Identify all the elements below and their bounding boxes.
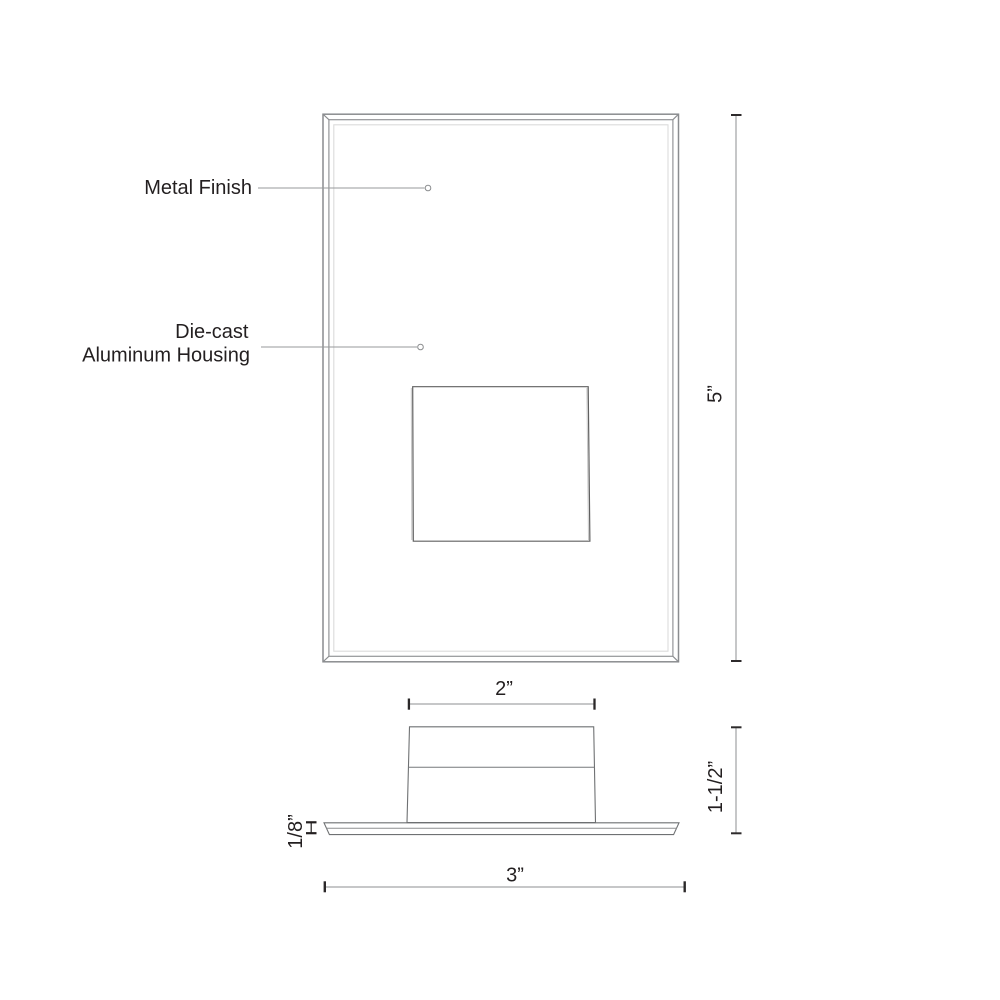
svg-text:2”: 2” <box>495 678 513 700</box>
svg-text:3”: 3” <box>506 864 524 886</box>
svg-text:5”: 5” <box>705 385 727 403</box>
svg-text:1/8”: 1/8” <box>285 814 307 848</box>
svg-text:Aluminum Housing: Aluminum Housing <box>82 345 250 367</box>
svg-text:Metal Finish: Metal Finish <box>144 177 252 199</box>
svg-text:Die-cast: Die-cast <box>175 321 249 343</box>
svg-text:1-1/2”: 1-1/2” <box>705 761 727 813</box>
